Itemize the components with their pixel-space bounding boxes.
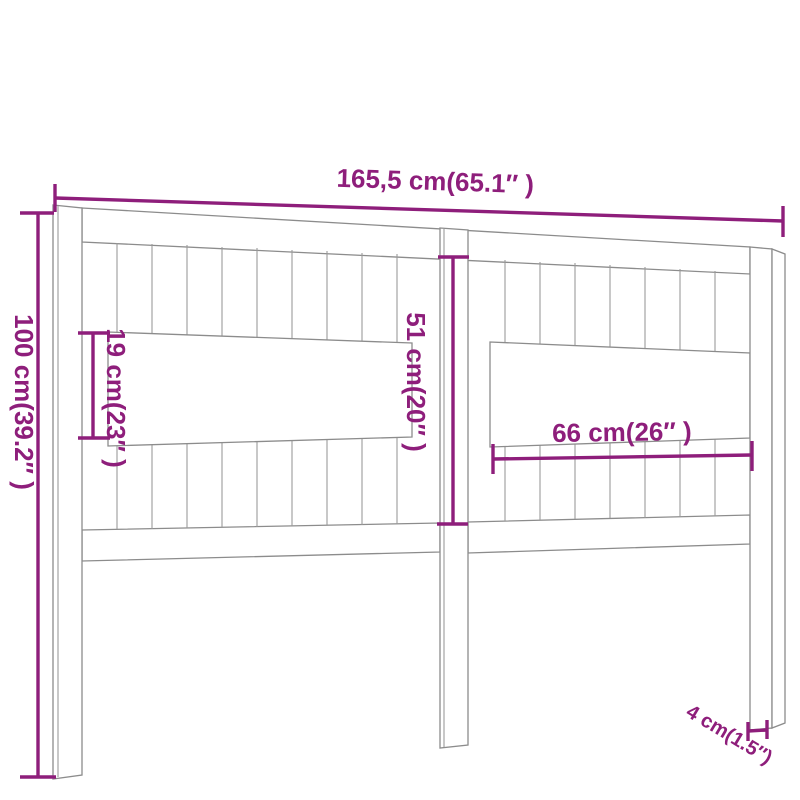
headboard-diagram: 165,5 cm(65.1″ ) 100 cm(39.2″ ) 19 cm(23… <box>0 0 800 800</box>
dimension-label-inner-height: 51 cm(20″ ) <box>401 312 431 452</box>
dimension-overall-height: 100 cm(39.2″ ) <box>9 213 56 777</box>
diagram-canvas: 165,5 cm(65.1″ ) 100 cm(39.2″ ) 19 cm(23… <box>0 0 800 800</box>
bottom-rail-left <box>82 523 440 561</box>
right-post <box>750 247 785 730</box>
headboard-outline <box>53 205 785 779</box>
left-opening <box>108 332 412 446</box>
dimension-label-overall-height: 100 cm(39.2″ ) <box>9 314 39 490</box>
left-post <box>53 205 82 779</box>
bottom-rail-right <box>468 515 750 553</box>
dimension-label-overall-width: 165,5 cm(65.1″ ) <box>336 163 534 200</box>
dimension-left-opening-height: 19 cm(23″ ) <box>78 328 131 468</box>
dimension-label-left-opening-height: 19 cm(23″ ) <box>101 328 131 468</box>
dimension-label-right-opening-width: 66 cm(26″ ) <box>552 416 692 448</box>
